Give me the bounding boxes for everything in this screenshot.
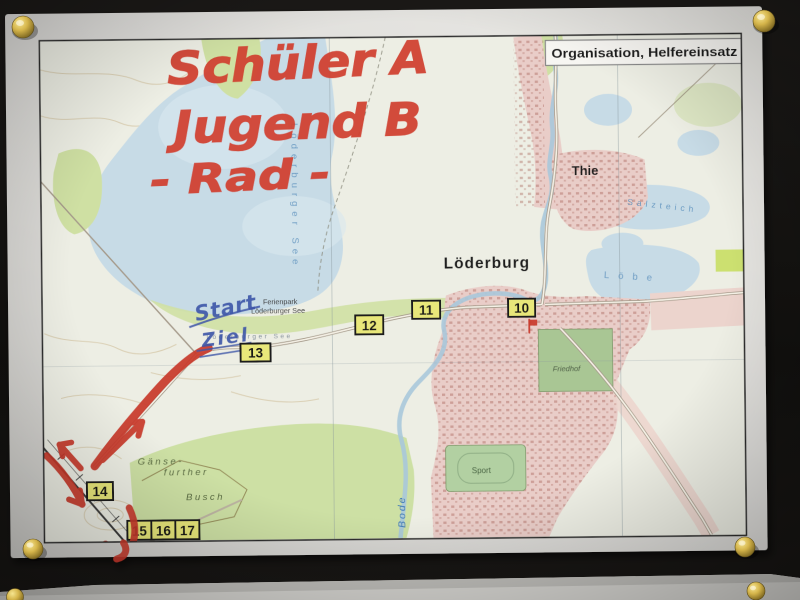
waypoint-label-11: 11 [419,303,434,318]
label-forest-3: Busch [186,492,225,503]
place-label-thie: Thie [572,163,599,178]
red-flag-icon [529,320,537,326]
waypoint-marker-14: 14 [87,482,113,500]
cemetery-area [538,329,613,392]
place-label-loederburg: Löderburg [444,255,531,273]
waypoint-label-16: 16 [156,523,172,538]
thumbtack-icon-second-paper-right [747,582,765,600]
waypoint-label-10: 10 [514,301,529,316]
waypoint-marker-11: 11 [412,301,440,319]
label-ferienpark: Ferienpark [263,297,298,306]
handwriting-red-line2: Jugend B [164,92,423,154]
waypoint-marker-13: 13 [240,343,270,361]
legend-title: Organisation, Helfereinsatz [551,45,737,61]
waypoint-marker-12: 12 [355,315,383,334]
legend-box: Organisation, Helfereinsatz [545,38,744,65]
label-friedhof: Friedhof [553,364,582,373]
photo-of-pinned-map: Löderburg Thie Ferienpark Löderburger Se… [0,0,800,600]
waypoint-label-14: 14 [92,484,108,499]
label-sport: Sport [472,466,492,475]
handwriting-red-line3: - Rad - [149,150,331,204]
waypoint-marker-17: 17 [175,520,199,539]
waypoint-marker-10: 10 [508,299,535,317]
waypoint-label-12: 12 [362,318,377,333]
waypoint-label-17: 17 [180,523,195,538]
label-bode-river: Bode [396,495,408,528]
waypoint-label-13: 13 [248,345,264,360]
waypoint-marker-16: 16 [151,520,175,539]
label-forest-2: further [164,467,209,478]
label-forest-1: Gänse- [138,456,184,467]
